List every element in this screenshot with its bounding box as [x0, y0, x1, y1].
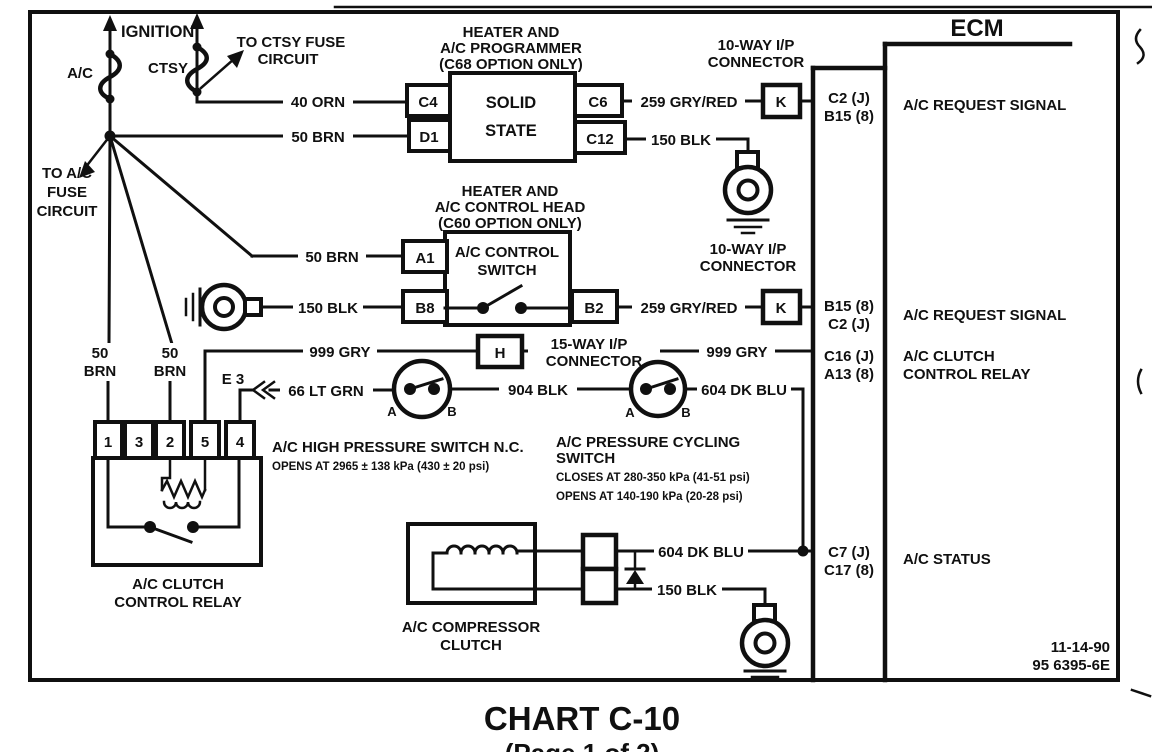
ecm-signal: A/C CLUTCH: [903, 348, 995, 365]
programmer-heading: (C68 OPTION ONLY): [439, 56, 583, 73]
ecm-pin: C7 (J): [828, 544, 870, 561]
wire-label-999: 999 GRY: [309, 344, 370, 361]
doc-date: 11-14-90: [1051, 639, 1110, 656]
control-head-heading: A/C CONTROL HEAD: [435, 199, 586, 216]
wire-label-brn: BRN: [84, 363, 117, 380]
doc-number: 95 6395-6E: [1032, 657, 1110, 674]
control-head-heading: (C60 OPTION ONLY): [438, 215, 582, 232]
relay-body-box: [93, 458, 261, 565]
to-ac-label: CIRCUIT: [37, 203, 98, 220]
wire-label-40-orn: 40 ORN: [291, 94, 345, 111]
control-switch-label: A/C CONTROL: [455, 244, 559, 261]
junction-dot: [798, 546, 809, 557]
ignition-label: IGNITION: [121, 23, 194, 41]
terminal-a-label: A: [625, 405, 635, 420]
switch-contact-dot: [428, 383, 440, 395]
ip15-connector-label: CONNECTOR: [546, 353, 643, 370]
switch-contact-dot: [664, 383, 676, 395]
wire-label-259: 259 GRY/RED: [641, 300, 738, 317]
chart-subtitle: (Page 1 of 2): [505, 738, 660, 752]
ring-terminal-hole: [215, 298, 233, 316]
to-ctsy-label: TO CTSY FUSE: [237, 34, 346, 51]
terminal-a-label: A: [387, 404, 397, 419]
schematic-page: ECM C2 (J) B15 (8) A/C REQUEST SIGNAL B1…: [0, 0, 1152, 752]
cycling-switch-title: SWITCH: [556, 450, 615, 467]
ecm-pin: C2 (J): [828, 90, 870, 107]
pin-d1-label: D1: [419, 129, 438, 146]
wire-label-259: 259 GRY/RED: [641, 94, 738, 111]
scan-artifact: [1138, 370, 1141, 393]
wire-label-150-blk: 150 BLK: [657, 582, 717, 599]
k-connector-label: K: [776, 300, 787, 317]
solid-state-box: [450, 73, 575, 161]
pin-b8-label: B8: [415, 300, 434, 317]
solid-state-label: SOLID: [486, 94, 537, 112]
scan-artifact: [1136, 30, 1144, 63]
ring-terminal-hole: [756, 634, 775, 653]
wire-label-999: 999 GRY: [706, 344, 767, 361]
wire-label-904: 904 BLK: [508, 382, 568, 399]
relay-pin-label: 1: [104, 434, 112, 451]
wire-label-150-blk: 150 BLK: [298, 300, 358, 317]
chart-title: CHART C-10: [484, 700, 680, 737]
terminal-b-label: B: [681, 405, 690, 420]
pin-a1-label: A1: [415, 250, 434, 267]
h-connector-label: H: [495, 345, 506, 362]
ctsy-fuse-label: CTSY: [148, 60, 188, 77]
ecm-pin: C2 (J): [828, 316, 870, 333]
ecm-pin: C16 (J): [824, 348, 874, 365]
ac-fuse-label: A/C: [67, 65, 93, 82]
ecm-pin: B15 (8): [824, 108, 874, 125]
pin-b2-label: B2: [584, 300, 603, 317]
ecm-pin: A13 (8): [824, 366, 874, 383]
chart-title-block: CHART C-10 (Page 1 of 2): [484, 700, 680, 752]
cycling-switch-body: [631, 362, 685, 416]
wire-label-50-brn: 50 BRN: [305, 249, 358, 266]
solid-state-label: STATE: [485, 122, 537, 140]
wire-label-150-blk: 150 BLK: [651, 132, 711, 149]
cycling-switch-spec: CLOSES AT 280-350 kPa (41-51 psi): [556, 472, 750, 484]
wire-label-brn: BRN: [154, 363, 187, 380]
compressor-label: CLUTCH: [440, 637, 502, 654]
ecm-signal: A/C REQUEST SIGNAL: [903, 307, 1066, 324]
programmer-heading: HEATER AND: [463, 24, 560, 41]
control-head-heading: HEATER AND: [462, 183, 559, 200]
ring-terminal-hole: [739, 181, 758, 200]
relay-pin-label: 4: [236, 434, 245, 451]
ecm-signal: A/C STATUS: [903, 551, 991, 568]
compressor-label: A/C COMPRESSOR: [402, 619, 541, 636]
wire-label-50-brn: 50 BRN: [291, 129, 344, 146]
ecm-signal: CONTROL RELAY: [903, 366, 1031, 383]
fuse-terminal-dot: [106, 95, 115, 104]
wire-label-604: 604 DK BLU: [658, 544, 744, 561]
scan-artifact: [1132, 690, 1150, 696]
programmer-heading: A/C PROGRAMMER: [440, 40, 582, 57]
wire-label-66: 66 LT GRN: [288, 383, 364, 400]
hp-switch-body: [394, 361, 450, 417]
cycling-switch-title: A/C PRESSURE CYCLING: [556, 434, 740, 451]
to-ac-label: FUSE: [47, 184, 87, 201]
relay-pin-label: 2: [166, 434, 174, 451]
ring-terminal-stem: [245, 299, 261, 315]
ecm-signal: A/C REQUEST SIGNAL: [903, 97, 1066, 114]
compressor-box: [408, 524, 535, 603]
wire-label-50: 50: [92, 345, 109, 362]
hp-switch-spec: OPENS AT 2965 ± 138 kPa (430 ± 20 psi): [272, 461, 489, 473]
pin-c12-label: C12: [586, 131, 614, 148]
ip15-connector-label: 15-WAY I/P: [551, 336, 628, 353]
ip10-connector-label: 10-WAY I/P: [718, 37, 795, 54]
terminal-b-label: B: [447, 404, 456, 419]
ecm-pin: C17 (8): [824, 562, 874, 579]
k-connector-label: K: [776, 94, 787, 111]
wire-label-604: 604 DK BLU: [701, 382, 787, 399]
pin-c6-label: C6: [588, 94, 607, 111]
ip10-connector-label: CONNECTOR: [708, 54, 805, 71]
relay-label: A/C CLUTCH: [132, 576, 224, 593]
wiring-diagram: ECM C2 (J) B15 (8) A/C REQUEST SIGNAL B1…: [0, 0, 1152, 752]
relay-pin-label: 5: [201, 434, 209, 451]
relay-pin-label: 3: [135, 434, 143, 451]
ecm-pin: B15 (8): [824, 298, 874, 315]
hp-switch-title: A/C HIGH PRESSURE SWITCH N.C.: [272, 439, 524, 456]
ecm-title: ECM: [950, 15, 1003, 42]
relay-label: CONTROL RELAY: [114, 594, 242, 611]
control-switch-label: SWITCH: [477, 262, 536, 279]
to-ctsy-label: CIRCUIT: [258, 51, 319, 68]
e3-label: E 3: [222, 371, 245, 388]
pin-c4-label: C4: [418, 94, 438, 111]
ip10-connector-label: 10-WAY I/P: [710, 241, 787, 258]
clutch-connector-bottom: [583, 569, 616, 603]
clutch-connector-top: [583, 535, 616, 569]
ip10-connector-label: CONNECTOR: [700, 258, 797, 275]
cycling-switch-spec: OPENS AT 140-190 kPa (20-28 psi): [556, 491, 743, 503]
to-ac-label: TO A/C: [42, 165, 92, 182]
wire-label-50: 50: [162, 345, 179, 362]
